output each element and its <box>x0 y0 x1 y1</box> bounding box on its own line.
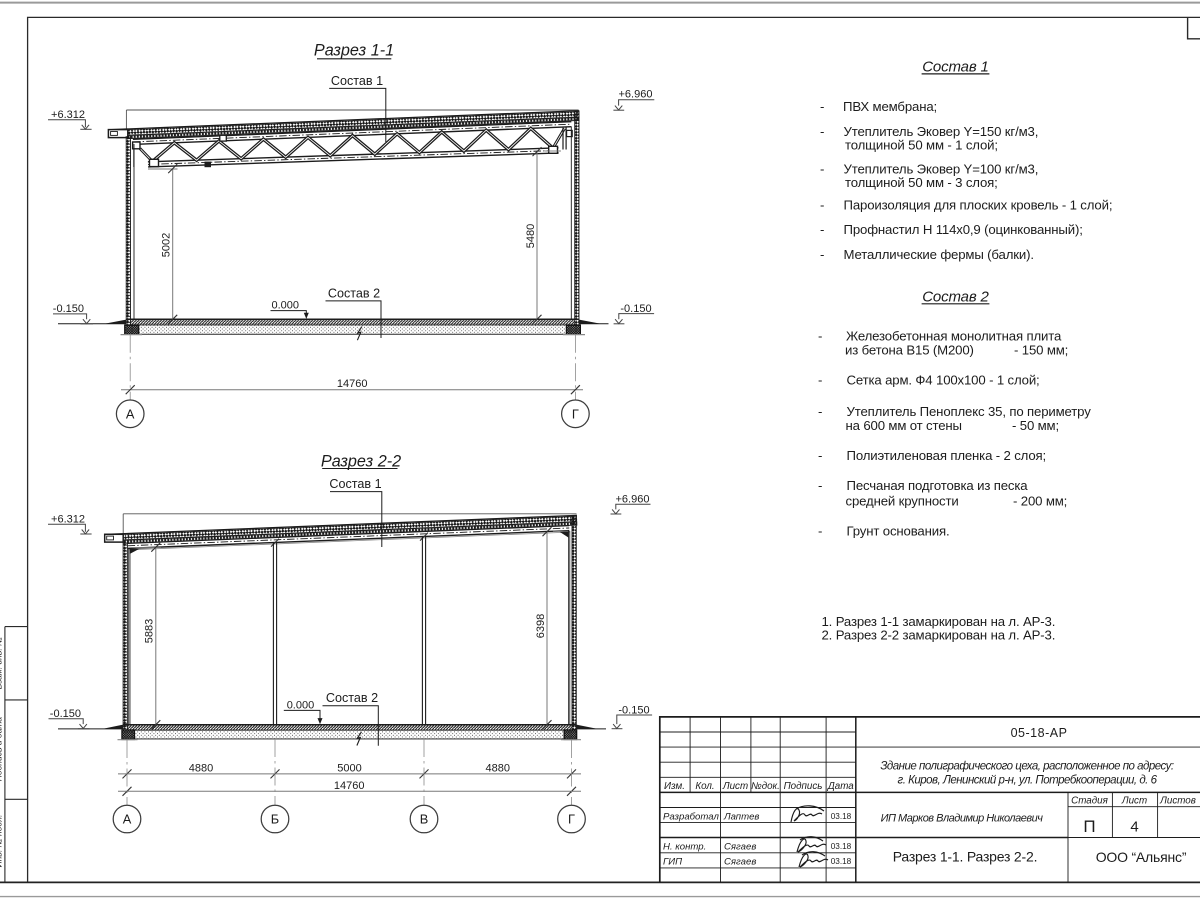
svg-text:Полиэтиленовая пленка - 2 слоя: Полиэтиленовая пленка - 2 слоя; <box>847 448 1047 463</box>
svg-text:Стадия: Стадия <box>1071 795 1108 806</box>
svg-text:Профнастил Н 114х0,9 (оцинкова: Профнастил Н 114х0,9 (оцинкованный); <box>844 222 1083 237</box>
svg-text:Лаптев: Лаптев <box>723 811 759 822</box>
svg-text:Н. контр.: Н. контр. <box>663 842 706 853</box>
svg-text:П: П <box>1083 817 1095 836</box>
svg-text:Инв. № подл.: Инв. № подл. <box>0 815 4 868</box>
svg-text:Состав 1: Состав 1 <box>329 477 381 491</box>
svg-text:ООО “Альянс”: ООО “Альянс” <box>1096 849 1187 865</box>
svg-text:средней крупности: средней крупности <box>846 493 959 508</box>
svg-text:Лист: Лист <box>1121 795 1147 806</box>
svg-text:03.18: 03.18 <box>831 812 852 821</box>
svg-text:- 150 мм;: - 150 мм; <box>1014 342 1068 357</box>
svg-text:-: - <box>818 328 822 343</box>
svg-text:5883: 5883 <box>144 619 156 643</box>
svg-text:Г: Г <box>572 406 579 421</box>
svg-text:Состав 1: Состав 1 <box>331 74 383 88</box>
svg-text:Дата: Дата <box>827 781 854 792</box>
svg-text:Утеплитель Пеноплекс 35, по пе: Утеплитель Пеноплекс 35, по периметру <box>847 404 1092 419</box>
svg-text:- 50 мм;: - 50 мм; <box>1012 418 1059 433</box>
svg-text:Б: Б <box>271 812 279 827</box>
svg-text:0.000: 0.000 <box>287 700 315 712</box>
svg-text:-: - <box>818 478 822 493</box>
svg-text:Лист: Лист <box>722 781 748 792</box>
svg-text:4: 4 <box>1130 819 1138 836</box>
svg-text:5000: 5000 <box>337 763 361 775</box>
svg-text:-: - <box>820 197 824 212</box>
svg-text:ПВХ мембрана;: ПВХ мембрана; <box>843 99 937 114</box>
svg-text:Песчаная подготовка из песка: Песчаная подготовка из песка <box>847 478 1029 493</box>
svg-text:05-18-АР: 05-18-АР <box>1011 726 1068 740</box>
svg-text:-: - <box>818 524 822 539</box>
svg-text:5002: 5002 <box>161 233 173 257</box>
svg-text:Сягаев: Сягаев <box>724 842 756 853</box>
svg-text:- 200 мм;: - 200 мм; <box>1013 493 1067 508</box>
svg-text:Подпись: Подпись <box>784 781 823 792</box>
svg-text:из бетона В15 (М200): из бетона В15 (М200) <box>845 342 974 357</box>
svg-text:-: - <box>818 404 822 419</box>
svg-text:Разрез 1-1. Разрез 2-2.: Разрез 1-1. Разрез 2-2. <box>893 849 1038 865</box>
svg-text:Состав 2: Состав 2 <box>328 287 380 301</box>
svg-text:-: - <box>820 99 824 114</box>
svg-text:А: А <box>123 812 132 827</box>
svg-text:5480: 5480 <box>525 224 537 248</box>
svg-text:-: - <box>820 161 824 176</box>
svg-text:В: В <box>420 812 429 827</box>
svg-text:Взам. инв. №: Взам. инв. № <box>0 637 4 690</box>
svg-text:толщиной 50 мм - 3 слоя;: толщиной 50 мм - 3 слоя; <box>845 175 998 190</box>
svg-text:-: - <box>818 448 822 463</box>
svg-text:6398: 6398 <box>535 614 547 638</box>
svg-text:А: А <box>126 406 135 421</box>
svg-text:на 600 мм от стены: на 600 мм от стены <box>846 418 962 433</box>
svg-text:03.18: 03.18 <box>831 842 852 851</box>
svg-text:Подпись и дата: Подпись и дата <box>0 717 4 782</box>
svg-text:Г: Г <box>568 812 575 827</box>
svg-text:-: - <box>820 222 824 237</box>
svg-text:Разработал: Разработал <box>663 811 719 822</box>
svg-text:Кол.: Кол. <box>695 781 714 792</box>
svg-text:14760: 14760 <box>334 780 365 792</box>
svg-text:Грунт основания.: Грунт основания. <box>847 524 950 539</box>
svg-text:4880: 4880 <box>486 763 510 775</box>
svg-text:Состав 2: Состав 2 <box>922 289 989 306</box>
svg-text:ИП Марков Владимир Николаевич: ИП Марков Владимир Николаевич <box>881 813 1044 825</box>
svg-text:Изм.: Изм. <box>664 781 685 792</box>
svg-text:№док.: №док. <box>751 781 780 792</box>
svg-text:Металлические фермы (балки).: Металлические фермы (балки). <box>844 247 1034 262</box>
svg-text:2. Разрез 2-2 замаркирован на: 2. Разрез 2-2 замаркирован на л. АР-3. <box>822 627 1056 642</box>
svg-text:03.18: 03.18 <box>831 857 852 866</box>
svg-text:-: - <box>820 124 824 139</box>
svg-text:-: - <box>818 373 822 388</box>
svg-text:-: - <box>820 247 824 262</box>
svg-text:Здание полиграфического цеха,: Здание полиграфического цеха, расположен… <box>880 761 1174 773</box>
svg-text:толщиной 50 мм - 1 слой;: толщиной 50 мм - 1 слой; <box>845 138 998 153</box>
svg-text:+6.960: +6.960 <box>619 89 653 101</box>
svg-text:г. Киров, Ленинский р-н, ул.: г. Киров, Ленинский р-н, ул. Потребкоопе… <box>898 775 1158 787</box>
svg-text:14760: 14760 <box>337 378 368 390</box>
svg-text:Листов: Листов <box>1159 795 1196 806</box>
svg-text:Железобетонная монолитная пли: Железобетонная монолитная плита <box>846 328 1062 343</box>
svg-text:Разрез 2-2: Разрез 2-2 <box>321 452 401 470</box>
svg-text:Пароизоляция для плоских крове: Пароизоляция для плоских кровель - 1 сло… <box>844 197 1113 212</box>
svg-text:Разрез 1-1: Разрез 1-1 <box>314 42 394 60</box>
svg-text:Состав 1: Состав 1 <box>922 59 988 76</box>
svg-text:0.000: 0.000 <box>272 300 300 312</box>
svg-text:4880: 4880 <box>189 763 213 775</box>
svg-text:ГИП: ГИП <box>663 857 682 868</box>
svg-text:Сетка арм. Ф4 100х100 - 1 слой: Сетка арм. Ф4 100х100 - 1 слой; <box>847 373 1040 388</box>
svg-text:Сягаев: Сягаев <box>724 857 756 868</box>
svg-text:Состав 2: Состав 2 <box>326 691 378 705</box>
